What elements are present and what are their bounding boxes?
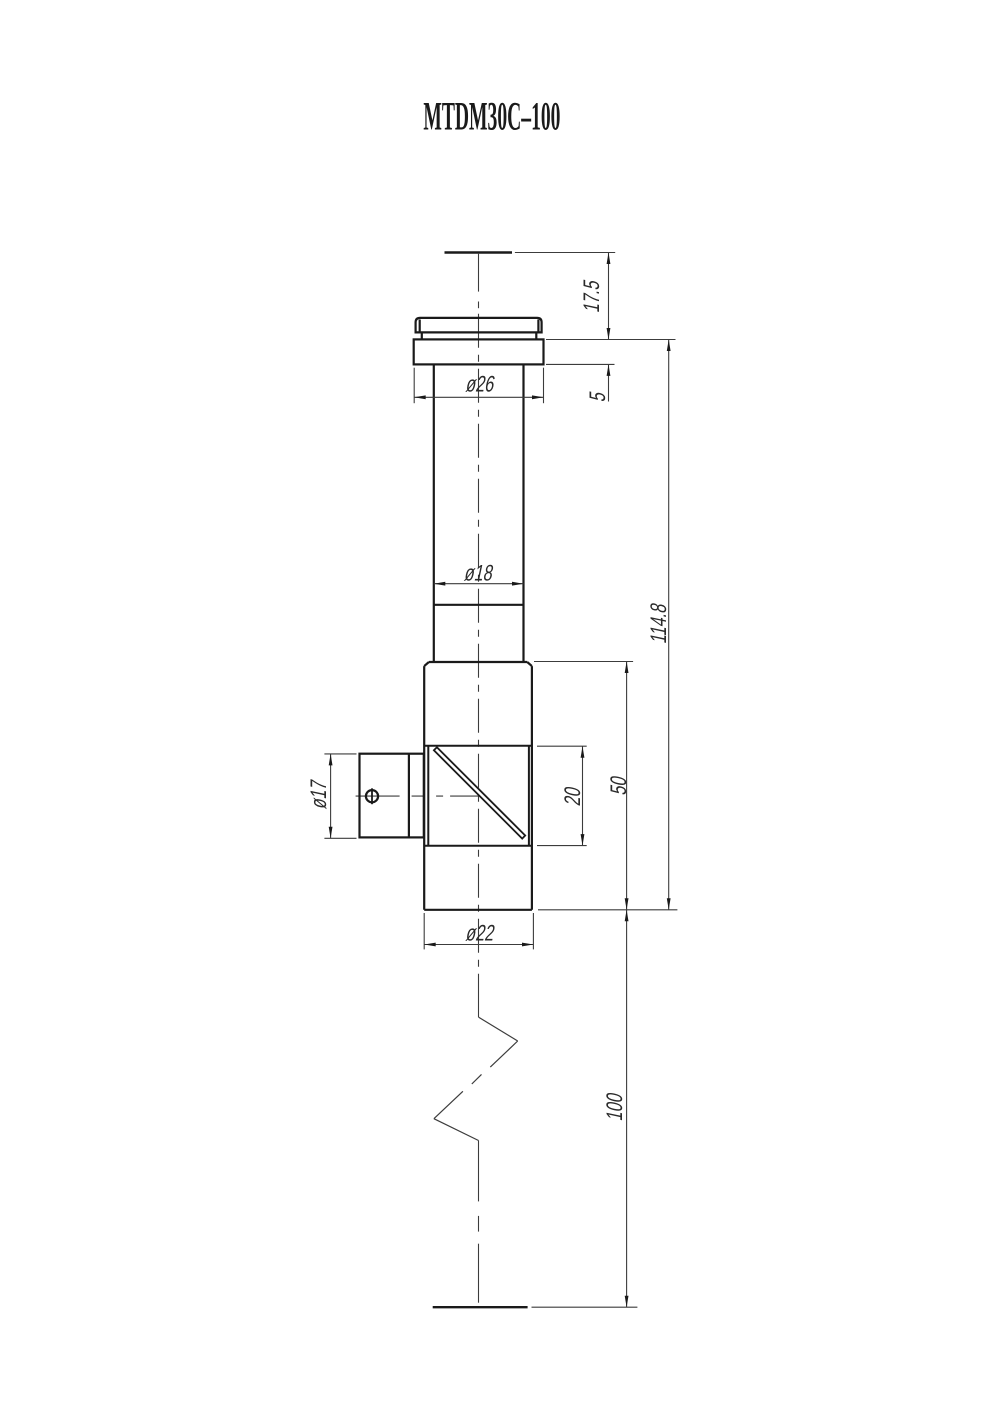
svg-text:100: 100 [603, 1090, 628, 1122]
svg-text:ø17: ø17 [307, 778, 332, 811]
svg-text:ø18: ø18 [462, 561, 495, 586]
svg-text:MTDM30C–100: MTDM30C–100 [423, 94, 560, 138]
svg-text:17.5: 17.5 [580, 278, 605, 315]
svg-text:ø26: ø26 [464, 372, 497, 397]
svg-text:114.8: 114.8 [647, 601, 672, 646]
svg-text:ø22: ø22 [464, 921, 497, 946]
